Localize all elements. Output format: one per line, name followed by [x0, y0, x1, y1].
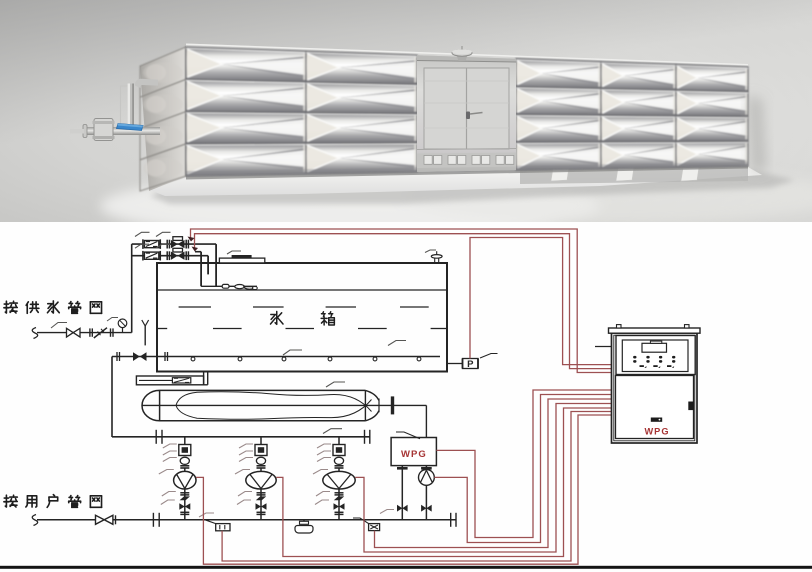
svg-text:WPG: WPG [645, 426, 670, 436]
svg-text:WPG: WPG [401, 449, 427, 460]
svg-text:P: P [467, 359, 474, 370]
